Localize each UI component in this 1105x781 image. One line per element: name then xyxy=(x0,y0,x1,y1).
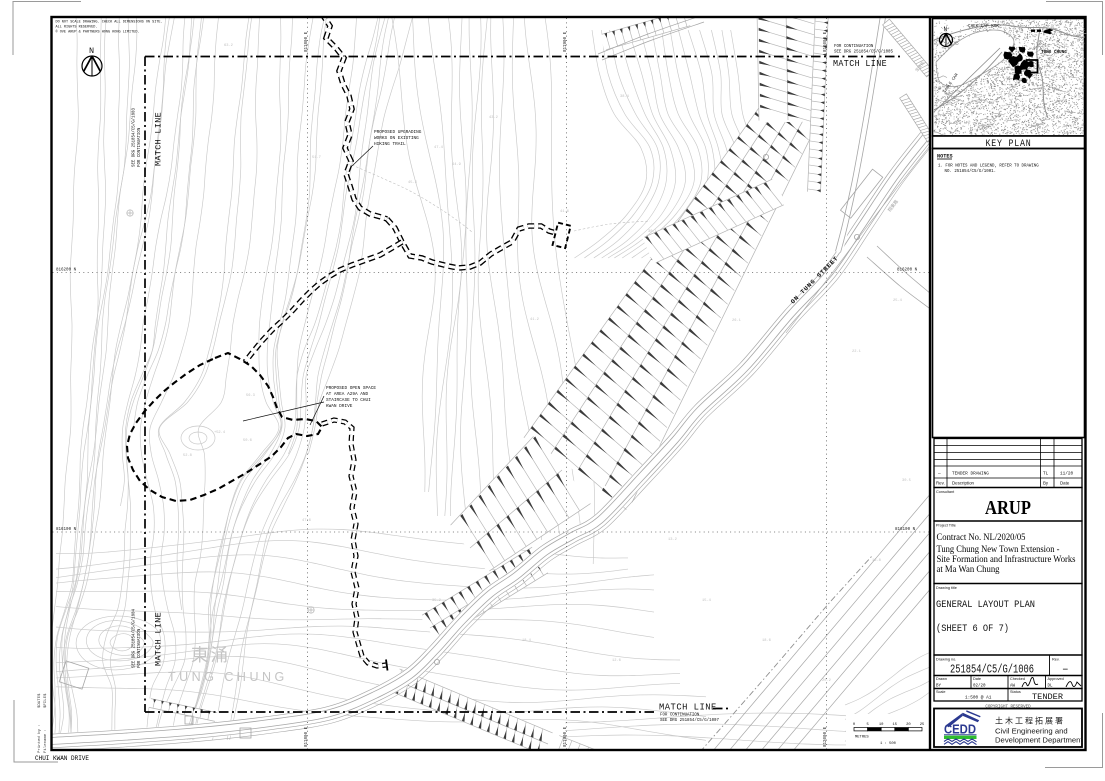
svg-text:FOR CONTINUATION: FOR CONTINUATION xyxy=(138,127,142,167)
svg-text:Status: Status xyxy=(1010,690,1021,694)
svg-text:TUNG CHUNG: TUNG CHUNG xyxy=(1041,50,1067,55)
svg-text:Development Department: Development Department xyxy=(995,736,1083,745)
svg-text:HIKING TRAIL: HIKING TRAIL xyxy=(374,142,406,147)
svg-text:SEE DRG 251854/C5/G/1005: SEE DRG 251854/C5/G/1005 xyxy=(834,50,894,55)
svg-text:22.1: 22.1 xyxy=(852,350,862,354)
svg-text:18.4: 18.4 xyxy=(522,639,532,643)
svg-text:26.1: 26.1 xyxy=(732,319,742,323)
svg-text:47.6: 47.6 xyxy=(302,519,311,523)
svg-text:Scale: Scale xyxy=(936,690,946,694)
svg-text:25: 25 xyxy=(920,723,925,727)
svg-text:TL: TL xyxy=(1043,472,1049,477)
svg-text:1 : 500: 1 : 500 xyxy=(880,742,897,746)
svg-text:Rev.: Rev. xyxy=(936,481,945,486)
svg-text:20: 20 xyxy=(906,723,911,727)
svg-text:56.3: 56.3 xyxy=(246,394,255,398)
svg-text:Project Title: Project Title xyxy=(936,524,956,528)
svg-text:NO. 251854/C5/G/1001.: NO. 251854/C5/G/1001. xyxy=(945,169,997,174)
svg-text:41.6: 41.6 xyxy=(560,210,569,214)
svg-text:KWAN DRIVE: KWAN DRIVE xyxy=(326,404,353,409)
svg-text:TENDER DRAWING: TENDER DRAWING xyxy=(952,472,989,477)
svg-text:MATCH LINE: MATCH LINE xyxy=(154,612,164,666)
svg-text:CEDD: CEDD xyxy=(944,722,976,737)
svg-text:1. FOR NOTES AND LEGEND, REFER: 1. FOR NOTES AND LEGEND, REFER TO DRAWIN… xyxy=(938,165,1039,169)
svg-text:38.4: 38.4 xyxy=(620,95,630,99)
svg-text:+52.4: +52.4 xyxy=(214,431,226,435)
svg-text:Consultant: Consultant xyxy=(936,490,955,494)
svg-text:CHEK LAP KOK: CHEK LAP KOK xyxy=(968,24,999,29)
svg-text:SEE DRG 251854/C5/G/1004: SEE DRG 251854/C5/G/1004 xyxy=(132,608,137,668)
svg-text:811900 E: 811900 E xyxy=(564,31,568,52)
svg-text:DO NOT SCALE DRAWING. CHECK AL: DO NOT SCALE DRAWING. CHECK ALL DIMENSIO… xyxy=(56,21,163,25)
svg-text:Rev.: Rev. xyxy=(1052,658,1060,662)
svg-text:41.2: 41.2 xyxy=(530,318,539,322)
svg-text:Drawing no.: Drawing no. xyxy=(936,658,956,662)
svg-text:816200 N: 816200 N xyxy=(897,269,918,273)
svg-text:WORKS ON EXISTING: WORKS ON EXISTING xyxy=(374,136,419,141)
svg-text:ALL RIGHTS RESERVED.: ALL RIGHTS RESERVED. xyxy=(56,26,98,30)
svg-text:15: 15 xyxy=(893,723,898,727)
svg-text:東涌: 東涌 xyxy=(191,645,230,665)
svg-text:47.4: 47.4 xyxy=(434,146,444,150)
svg-text:816100 N: 816100 N xyxy=(895,528,916,532)
svg-text:812000 E: 812000 E xyxy=(824,31,828,52)
svg-text:By: By xyxy=(1043,481,1049,486)
svg-text:Filename :: Filename : xyxy=(43,729,48,753)
svg-text:–: – xyxy=(1062,664,1069,676)
svg-text:35.2: 35.2 xyxy=(432,599,441,603)
svg-text:43.2: 43.2 xyxy=(489,116,498,120)
svg-text:$DATE$: $DATE$ xyxy=(37,693,42,708)
svg-text:1:500 @ A1: 1:500 @ A1 xyxy=(965,696,992,701)
svg-text:(SHEET 6 OF 7): (SHEET 6 OF 7) xyxy=(936,623,1009,635)
svg-text:Drawing title: Drawing title xyxy=(936,586,957,590)
svg-text:Description: Description xyxy=(952,481,975,486)
svg-text:51.7: 51.7 xyxy=(312,156,321,160)
svg-text:Date: Date xyxy=(1060,481,1070,486)
svg-text:N: N xyxy=(89,46,94,56)
svg-text:Approved: Approved xyxy=(1048,677,1064,681)
svg-text:811800 E: 811800 E xyxy=(305,31,309,52)
svg-text:Printed by :: Printed by : xyxy=(37,724,42,753)
svg-text:13.2: 13.2 xyxy=(668,538,677,542)
svg-text:Date: Date xyxy=(973,677,981,681)
svg-text:土木工程拓展署: 土木工程拓展署 xyxy=(995,716,1065,726)
svg-text:$FILE$: $FILE$ xyxy=(43,693,48,708)
svg-text:FOR CONTINUATION: FOR CONTINUATION xyxy=(660,714,700,718)
svg-text:02/20: 02/20 xyxy=(973,684,986,689)
svg-text:25.4: 25.4 xyxy=(893,299,903,303)
svg-text:12.6: 12.6 xyxy=(612,659,621,663)
svg-text:18.6: 18.6 xyxy=(762,639,771,643)
svg-text:Checked: Checked xyxy=(1010,677,1025,681)
svg-text:MATCH LINE: MATCH LINE xyxy=(154,112,164,166)
svg-text:SEE DRG 251854/C5/G/1007: SEE DRG 251854/C5/G/1007 xyxy=(660,718,720,723)
svg-text:52.8: 52.8 xyxy=(183,454,192,458)
svg-text:812000 E: 812000 E xyxy=(824,726,828,747)
svg-text:Civil Engineering and: Civil Engineering and xyxy=(995,727,1068,736)
svg-text:811800 E: 811800 E xyxy=(305,726,309,747)
svg-text:at Ma Wan Chung: at Ma Wan Chung xyxy=(937,564,1000,575)
svg-text:10: 10 xyxy=(879,723,884,727)
svg-text:811900 E: 811900 E xyxy=(564,726,568,747)
svg-text:45.3: 45.3 xyxy=(408,181,417,185)
svg-text:PROPOSED UPGRADING: PROPOSED UPGRADING xyxy=(374,130,422,135)
svg-text:—: — xyxy=(937,472,941,477)
svg-text:50.6: 50.6 xyxy=(243,439,252,443)
svg-text:816200 N: 816200 N xyxy=(56,269,77,273)
svg-text:44.9: 44.9 xyxy=(452,163,461,167)
svg-text:Drawn: Drawn xyxy=(936,677,947,681)
svg-text:MATCH LINE: MATCH LINE xyxy=(659,703,717,713)
svg-text:FOR CONTINUATION: FOR CONTINUATION xyxy=(138,628,142,668)
svg-text:15.4: 15.4 xyxy=(702,599,712,603)
svg-text:METRES: METRES xyxy=(855,736,869,740)
svg-text:GENERAL LAYOUT PLAN: GENERAL LAYOUT PLAN xyxy=(936,600,1035,611)
svg-text:TENDER: TENDER xyxy=(1032,692,1063,702)
svg-text:N: N xyxy=(944,26,948,33)
svg-text:816100 N: 816100 N xyxy=(56,528,77,532)
svg-text:30.5: 30.5 xyxy=(902,479,911,483)
svg-text:AT AREA A29A AND: AT AREA A29A AND xyxy=(326,392,369,397)
svg-text:251854/C5/G/1006: 251854/C5/G/1006 xyxy=(950,664,1034,677)
svg-text:SEE DRG 251854/C5/G/1003: SEE DRG 251854/C5/G/1003 xyxy=(132,107,137,167)
svg-text:MATCH LINE: MATCH LINE xyxy=(833,59,887,69)
svg-text:Contract No. NL/2020/05: Contract No. NL/2020/05 xyxy=(937,532,1026,543)
svg-text:ARUP: ARUP xyxy=(985,497,1031,519)
svg-text:FOR CONTINUATION: FOR CONTINUATION xyxy=(834,45,874,49)
svg-text:63.2: 63.2 xyxy=(224,44,233,48)
svg-text:STAIRCASE TO CHUI: STAIRCASE TO CHUI xyxy=(326,398,371,403)
svg-text:TUNG CHUNG: TUNG CHUNG xyxy=(168,670,288,684)
svg-text:PROPOSED OPEN SPACE: PROPOSED OPEN SPACE xyxy=(326,386,376,391)
svg-text:© OVE ARUP & PARTNERS HONG KON: © OVE ARUP & PARTNERS HONG KONG LIMITED. xyxy=(56,30,140,35)
svg-text:CHUI KWAN DRIVE: CHUI KWAN DRIVE xyxy=(35,755,89,762)
svg-text:11/20: 11/20 xyxy=(1060,472,1074,477)
